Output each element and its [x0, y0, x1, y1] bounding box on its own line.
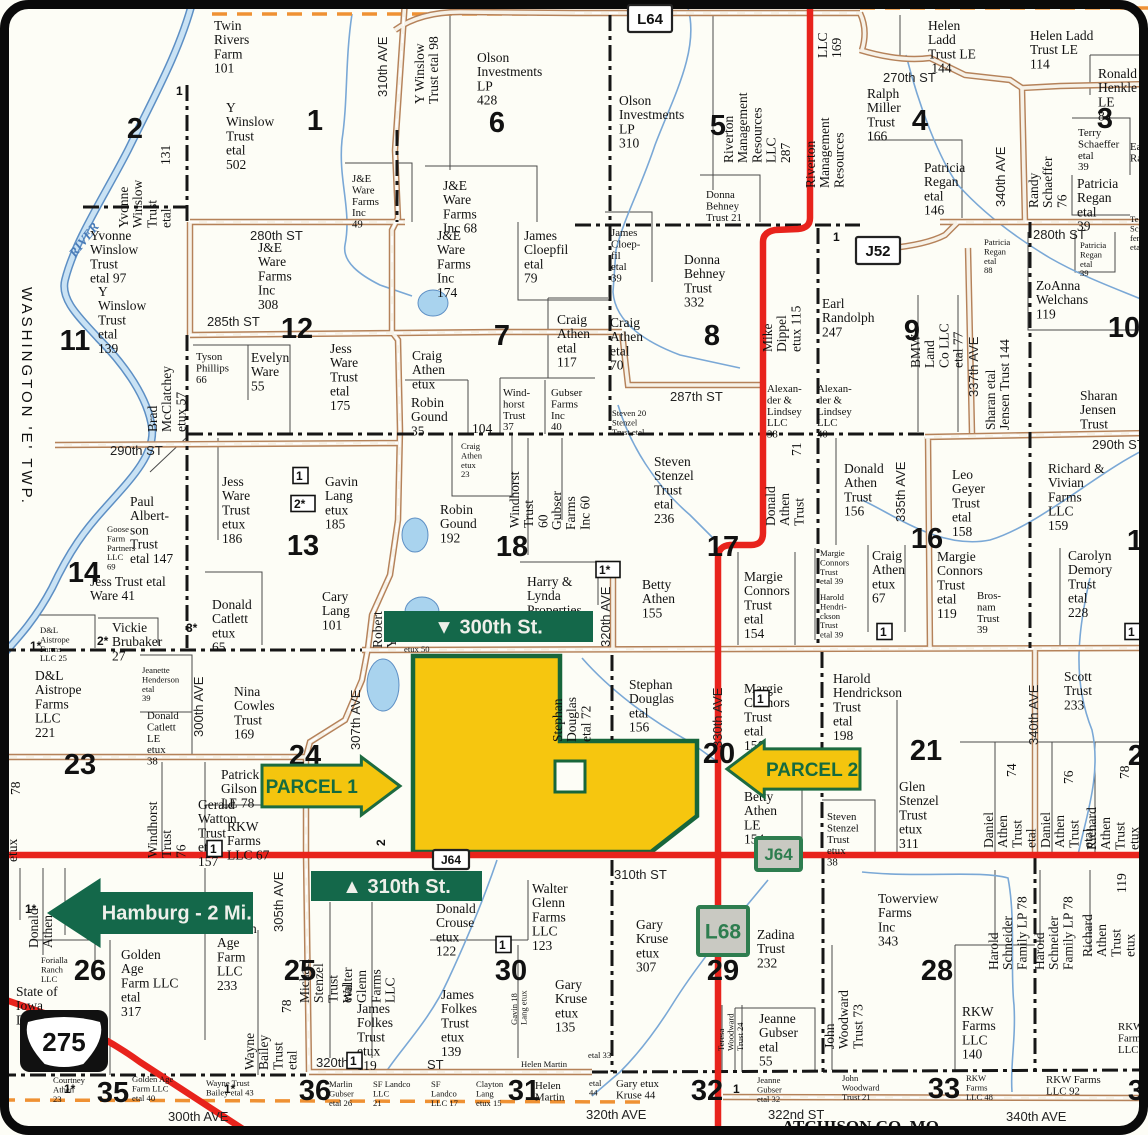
section-number: 13: [287, 530, 319, 562]
section-number: 33: [928, 1073, 960, 1105]
lot-number: 2: [374, 839, 388, 846]
section-number: 26: [74, 955, 106, 987]
parcel-owner-label: DonaldAthenTrust: [763, 486, 806, 526]
parcel-owner-label: EarlRandolph247: [822, 296, 875, 339]
parcel-owner-label: RichardAthenTrustetux: [1084, 807, 1142, 850]
route-marker-label: J64: [441, 853, 461, 867]
road-name-label: 340th AVE: [1026, 684, 1041, 745]
route-marker-label: J64: [764, 845, 793, 864]
parcel-owner-label: JamesCloep-filetal39: [611, 227, 641, 285]
road-name-label: 310th AVE: [375, 36, 390, 97]
parcel-owner-label: CraigAthenetux: [412, 348, 445, 391]
parcel-owner-label: YWinslowTrustetal502: [226, 100, 274, 172]
pond: [367, 659, 399, 711]
direction-sign-label: Hamburg - 2 Mi.: [102, 903, 252, 925]
parcel-owner-label: DonaldCrouseetux122: [436, 901, 476, 959]
parcel-owner-label: SharanJensenTrust: [1080, 388, 1118, 431]
parcel-owner-label: StephanDouglasetal156: [629, 677, 674, 735]
parcel-owner-label: Sharan etalJensen Trust 144: [983, 339, 1012, 430]
section-number: 9: [904, 315, 920, 347]
section-number: 30: [495, 955, 527, 987]
parcel-owner-label: YvonneWinslowTrustetal: [116, 180, 174, 228]
map-labels: TwinRiversFarm101YWinslowTrustetal502Yvo…: [0, 18, 1148, 1135]
parcel-owner-label: HaroldHendricksonTrustetal198: [833, 671, 902, 743]
street-sign-label: ▲ 310th St.: [342, 876, 451, 898]
parcel-owner-label: GlenStenzelTrustetux311: [899, 779, 939, 851]
parcel-owner-label: JessWareTrustetal175: [330, 341, 358, 413]
parcel-owner-label: WindhorstTrust60: [507, 471, 550, 528]
road-name-label: 285th ST: [207, 314, 260, 329]
parcel-owner-label: GaryKruseetux307: [636, 917, 668, 975]
plat-map-canvas: TwinRiversFarm101YWinslowTrustetal502Yvo…: [0, 0, 1148, 1135]
parcel-owner-label: EvelynWare55: [251, 350, 289, 393]
parcel-owner-label: RKW FarmsLLC 92: [1046, 1074, 1101, 1097]
us-275-route-label: 275: [42, 1027, 85, 1057]
lot-number: 1: [757, 692, 764, 706]
parcel-owner-label: etal 33: [588, 1050, 611, 1060]
route-marker-label: L64: [637, 11, 664, 28]
section-number: 17: [707, 531, 739, 563]
lot-number: 1: [176, 84, 183, 98]
parcel-owner-label: J&EWareFarmsInc 68: [443, 178, 477, 236]
lot-number: 1: [880, 625, 887, 639]
road-name-label: 280th ST: [250, 228, 303, 243]
parcel-owner-label: 78: [8, 781, 23, 795]
parcel-owner-label: ScottTrust233: [1064, 669, 1092, 712]
parcel-owner-label: BettyAthen155: [642, 577, 675, 620]
parcel-owner-label: YvonneWinslowTrustetal 97: [90, 228, 138, 286]
section-number: 21: [910, 735, 942, 767]
parcel-owner-label: 76: [1061, 770, 1076, 784]
parcel-owner-label: JessWareTrustetux186: [222, 474, 250, 546]
parcel-owner-label: CaryLang101: [322, 589, 350, 632]
section-number: 1: [307, 105, 323, 137]
parcel-owner-label: MargieConnorsTrustetal 39: [820, 548, 850, 586]
section-number: 35: [97, 1077, 129, 1109]
parcel-owner-label: GoldenAgeFarm LLCetal317: [121, 947, 178, 1019]
parcel-owner-label: ClaytonLangetux 15: [476, 1079, 504, 1108]
parcel-owner-label: Harry &LyndaProperties: [527, 574, 582, 617]
parcel-owner-label: Helen LaddTrust LE114: [1030, 28, 1094, 71]
parcel-owner-label: RalphMillerTrust166: [867, 86, 901, 144]
parcel-owner-label: RobinGound35: [411, 395, 448, 438]
parcel-owner-label: LeoGeyerTrustetal158: [952, 467, 985, 539]
parcel-arrow-label: PARCEL 1: [266, 777, 359, 798]
parcel-owner-label: WayneBaileyTrustetal: [242, 1033, 300, 1070]
parcel-owner-label: GubserFarmsInc 60: [549, 491, 592, 530]
section-number: 29: [707, 955, 739, 987]
parcel-owner-label: PaulAlbert-sonTrustetal 147: [130, 494, 173, 566]
road-name-label: 320th AVE: [598, 586, 613, 647]
parcel-owner-label: etux 50: [404, 644, 430, 654]
parcel-owner-label: SF LandcoLLC21: [373, 1079, 410, 1108]
road-name-label: 290th ST: [1092, 437, 1145, 452]
lot-number: 1: [210, 842, 217, 856]
parcel-owner-label: OlsonInvestmentsLP310: [619, 93, 684, 151]
road-name-label: 320th: [316, 1055, 349, 1070]
parcel-owner-label: RKWFarmsLLC140: [962, 1004, 996, 1062]
section-number: 25: [284, 955, 316, 987]
section-number: 3: [1097, 103, 1113, 135]
parcel-owner-label: 119: [1114, 873, 1129, 893]
parcel-owner-label: TwinRiversFarm101: [214, 18, 249, 76]
road-name-label: 290th ST: [110, 443, 163, 458]
highlight-parcel-notch: [555, 761, 585, 792]
lot-number: 1: [733, 1082, 740, 1096]
road-name-label: ST: [427, 1057, 444, 1072]
parcel-owner-label: SFLandcoLLC 17: [431, 1079, 459, 1108]
parcel-owner-label: 131: [158, 145, 173, 165]
parcel-owner-label: Jess Trust etalWare 41: [90, 574, 166, 603]
parcel-owner-label: MargieConnorsTrustetal119: [937, 549, 983, 621]
parcel-owner-label: DanielAthenTrustetal: [981, 812, 1039, 848]
parcel-owner-label: StevenStenzelTrustetux38: [827, 811, 859, 869]
parcel-owner-label: LLC169: [815, 33, 844, 59]
road-name-label: 337th AVE: [966, 336, 981, 397]
parcel-owner-label: RKWFarmsLLC 48: [966, 1073, 993, 1102]
section-number: 2: [127, 113, 143, 145]
parcel-owner-label: MargieConnorsTrustetal154: [744, 569, 790, 641]
street-sign-label: ▼ 300th St.: [434, 617, 543, 639]
parcel-owner-label: Alexan-der &LindseyLLC40: [817, 383, 852, 441]
parcel-owner-label: StephanDouglasetal 72: [550, 697, 593, 742]
road-name-label: 300th AVE: [168, 1109, 229, 1124]
parcel-owner-label: HaroldHendri-cksonTrustetal 39: [820, 592, 847, 640]
parcel-owner-label: WalterGlennFarmsLLC: [340, 967, 398, 1003]
road-name-label: 310th ST: [614, 867, 667, 882]
parcel-owner-label: ZoAnnaWelchans119: [1036, 278, 1088, 321]
section-number: 10: [1108, 312, 1140, 344]
parcel-owner-label: TysonPhillips66: [196, 351, 229, 386]
parcel-owner-label: J&EWareFarmsInc174: [437, 228, 471, 300]
parcel-owner-label: VickieBrubaker27: [112, 620, 163, 663]
section-number: 23: [64, 749, 96, 781]
parcel-owner-label: JamesFolkesTrustetux139: [441, 987, 477, 1059]
parcel-owner-label: JeanneGubseretal55: [759, 1011, 798, 1069]
parcel-owner-label: NinaCowlesTrust169: [234, 684, 275, 742]
lot-number: 1*: [224, 1082, 236, 1096]
parcel-owner-label: MikeDippeletux 115: [760, 305, 803, 352]
parcel-owner-label: DonaldAthenTrust156: [844, 461, 884, 519]
parcel-owner-label: Bros-namTrust39: [977, 590, 1001, 636]
parcel-owner-label: DonnaBehneyTrust 21: [706, 189, 742, 224]
parcel-owner-label: BradMcClatcheyetux 57: [145, 366, 188, 432]
route-marker-label: L68: [705, 921, 742, 944]
parcel-owner-label: GubserFarmsInc40: [551, 387, 583, 433]
lot-number: 1: [499, 938, 506, 952]
road-name-label: 335th AVE: [893, 461, 908, 522]
parcel-owner-label: WindhorstTrust76: [145, 801, 188, 858]
parcel-owner-label: CraigAthenetal117: [557, 312, 590, 370]
route-marker-label: J52: [865, 243, 890, 260]
parcel-owner-label: JeanetteHendersonetal39: [142, 665, 180, 703]
parcel-owner-label: Helen Martin: [521, 1059, 568, 1069]
parcel-owner-label: Alexan-der &LindseyLLC38: [767, 383, 802, 441]
parcel-owner-label: ZadinaTrust232: [757, 927, 794, 970]
parcel-owner-label: PatriciaReganetal146: [924, 160, 965, 218]
parcel-owner-label: GavinLangetux185: [325, 474, 358, 532]
parcel-owner-label: etal44: [589, 1078, 602, 1097]
section-number: 5: [710, 110, 726, 142]
lot-number: 1*: [599, 563, 611, 577]
section-number: 4: [912, 105, 928, 137]
road-name-label: 300th AVE: [191, 676, 206, 737]
parcel-owner-label: Y WinslowTrust etal 98: [412, 36, 441, 104]
parcel-owner-label: Richard &VivianFarmsLLC159: [1048, 461, 1105, 533]
lot-number: 1*: [25, 902, 37, 916]
parcel-owner-label: MarlinGubseretal 26: [329, 1079, 354, 1108]
section-number: 36: [299, 1075, 331, 1107]
lot-number: 1*: [30, 639, 42, 653]
parcel-owner-label: HaroldSchneiderFamily LP 78: [986, 896, 1029, 970]
parcel-owner-label: Wind-horstTrust37: [503, 387, 531, 433]
parcel-owner-label: RKWFarmsLLC 67: [227, 819, 270, 862]
parcel-owner-label: GaryKruseetux135: [555, 977, 587, 1035]
parcel-owner-label: JohnWoodwardTrust 73: [822, 990, 865, 1049]
parcel-owner-label: CraigAthenetux23: [461, 441, 483, 479]
parcel-owner-label: JeanneGubseretal 32: [757, 1075, 782, 1104]
parcel-owner-label: YWinslowTrustetal139: [98, 284, 146, 356]
parcel-owner-label: TowerviewFarmsInc343: [878, 891, 939, 949]
stream: [613, 8, 740, 368]
parcel-owner-label: Steven 20StenzelTrust etal: [612, 408, 646, 437]
parcel-owner-label: CraigAthenetux67: [872, 548, 905, 606]
road-name-label: 320th AVE: [586, 1107, 647, 1122]
road-name-label: 305th AVE: [271, 871, 286, 932]
section-number: 8: [704, 320, 720, 352]
parcel-owner-label: 78: [279, 999, 294, 1013]
road-name-label: 340th AVE: [1006, 1109, 1067, 1124]
road-name-label: 340th AVE: [993, 146, 1008, 207]
parcel-owner-label: Gavin 18Lang etux: [509, 990, 528, 1025]
road-name-label: 287th ST: [670, 389, 723, 404]
parcel-owner-label: RivertonManagementResourcesLLC287: [721, 92, 793, 163]
parcel-owner-label: DonaldCatlettetux65: [212, 597, 252, 655]
road-name-label: 307th AVE: [348, 689, 363, 750]
lot-number: 1*: [64, 1082, 76, 1096]
parcel-owner-label: D&LAistropeFarmsLLC221: [35, 668, 82, 740]
township-label: WASHINGTON 'E' TWP.: [18, 287, 35, 506]
parcel-owner-label: 74: [1004, 763, 1019, 777]
road-name-label: 280th ST: [1033, 227, 1086, 242]
parcel-owner-label: StevenStenzelTrustetal236: [654, 454, 694, 526]
lot-number: 1: [833, 230, 840, 244]
pond: [402, 518, 428, 552]
parcel-owner-label: Golden AgeFarm LLCetal 40: [132, 1074, 173, 1103]
lot-number: 1: [1128, 625, 1135, 639]
section-number: 28: [921, 955, 953, 987]
parcel-owner-label: ForiallaRanchLLC: [41, 955, 68, 984]
parcel-owner-label: JamesCloepfiletal79: [524, 228, 568, 286]
parcel-owner-label: DonnaBehneyTrust332: [684, 252, 725, 310]
parcel-owner-label: RichardAthenTrustetux: [1080, 914, 1138, 957]
parcel-owner-label: PatriciaReganetal88: [984, 237, 1010, 275]
parcel-owner-label: HaroldSchneiderFamily LP 78: [1032, 896, 1075, 970]
parcel-owner-label: RandySchaeffer76: [1026, 156, 1069, 208]
section-number: 6: [489, 107, 505, 139]
parcel-owner-label: RobinGound192: [440, 502, 477, 545]
parcel-arrow-label: PARCEL 2: [766, 760, 858, 781]
lot-number: 2*: [294, 497, 306, 511]
parcel-owner-label: WalterGlennFarmsLLC123: [532, 881, 568, 953]
parcel-owner-label: D&LAistropeFarmsLLC 25: [40, 625, 70, 663]
parcel-owner-label: 104: [472, 421, 493, 436]
lot-number: 1: [296, 469, 303, 483]
section-number: 12: [281, 313, 313, 345]
parcel-owner-label: 71: [789, 443, 804, 457]
lot-number: 2*: [97, 634, 109, 648]
section-number: 14: [68, 557, 100, 589]
section-number: 16: [911, 523, 943, 555]
section-number: 18: [496, 531, 528, 563]
lot-number: 1: [350, 1054, 357, 1068]
parcel-owner-label: OlsonInvestmentsLP428: [477, 50, 542, 108]
lot-number: 3*: [186, 621, 198, 635]
parcel-owner-label: PatrickGilsonLE 78: [221, 767, 259, 810]
parcel-owner-label: CarolynDemoryTrustetal228: [1068, 548, 1112, 620]
section-number: 11: [60, 325, 91, 357]
section-number: 7: [494, 320, 510, 352]
parcel-owner-label: Gary etuxKruse 44: [616, 1078, 659, 1101]
plat-map: TwinRiversFarm101YWinslowTrustetal502Yvo…: [0, 0, 1148, 1135]
section-number: 32: [691, 1075, 723, 1107]
parcel-owner-label: J&EWareFarmsInc308: [258, 240, 292, 312]
road-name-label: 270th ST: [883, 70, 936, 85]
section-number: 31: [508, 1075, 540, 1107]
